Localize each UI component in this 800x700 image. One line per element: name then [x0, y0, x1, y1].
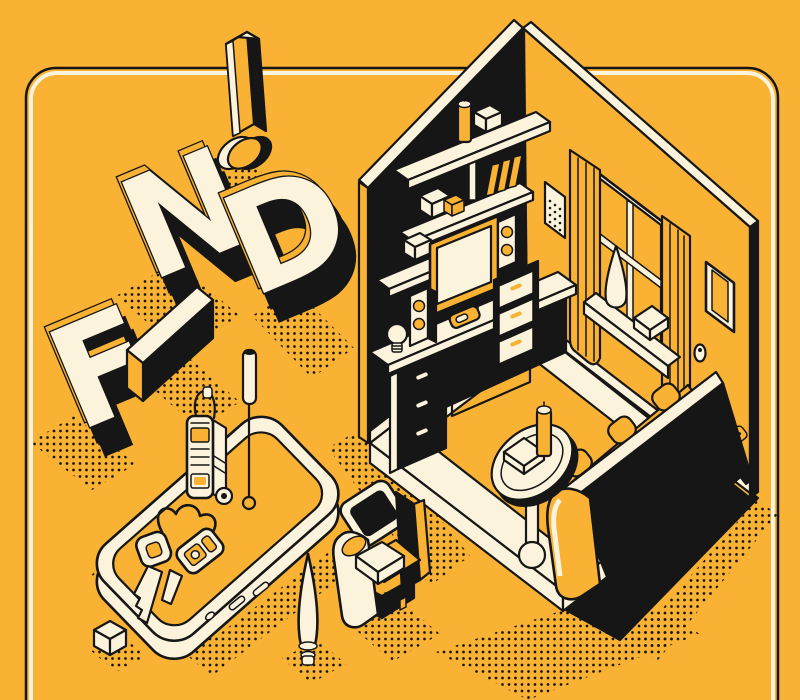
keyhole-plate [695, 345, 706, 362]
find-illustration: FIND! concept artwork: giant 3D letters … [0, 0, 800, 700]
shelf-candle [458, 97, 471, 142]
table-candle [537, 402, 551, 456]
speaker-right [498, 214, 524, 270]
drawer-unit-right [494, 261, 538, 375]
curtain-left [570, 150, 600, 364]
speaker-left [410, 288, 436, 346]
small-cube [94, 621, 126, 655]
illustration-canvas: FIND! concept artwork: giant 3D letters … [0, 0, 800, 700]
sofa-armrest [547, 489, 600, 600]
storage-box-top [474, 105, 502, 132]
storage-box-left [404, 233, 431, 260]
